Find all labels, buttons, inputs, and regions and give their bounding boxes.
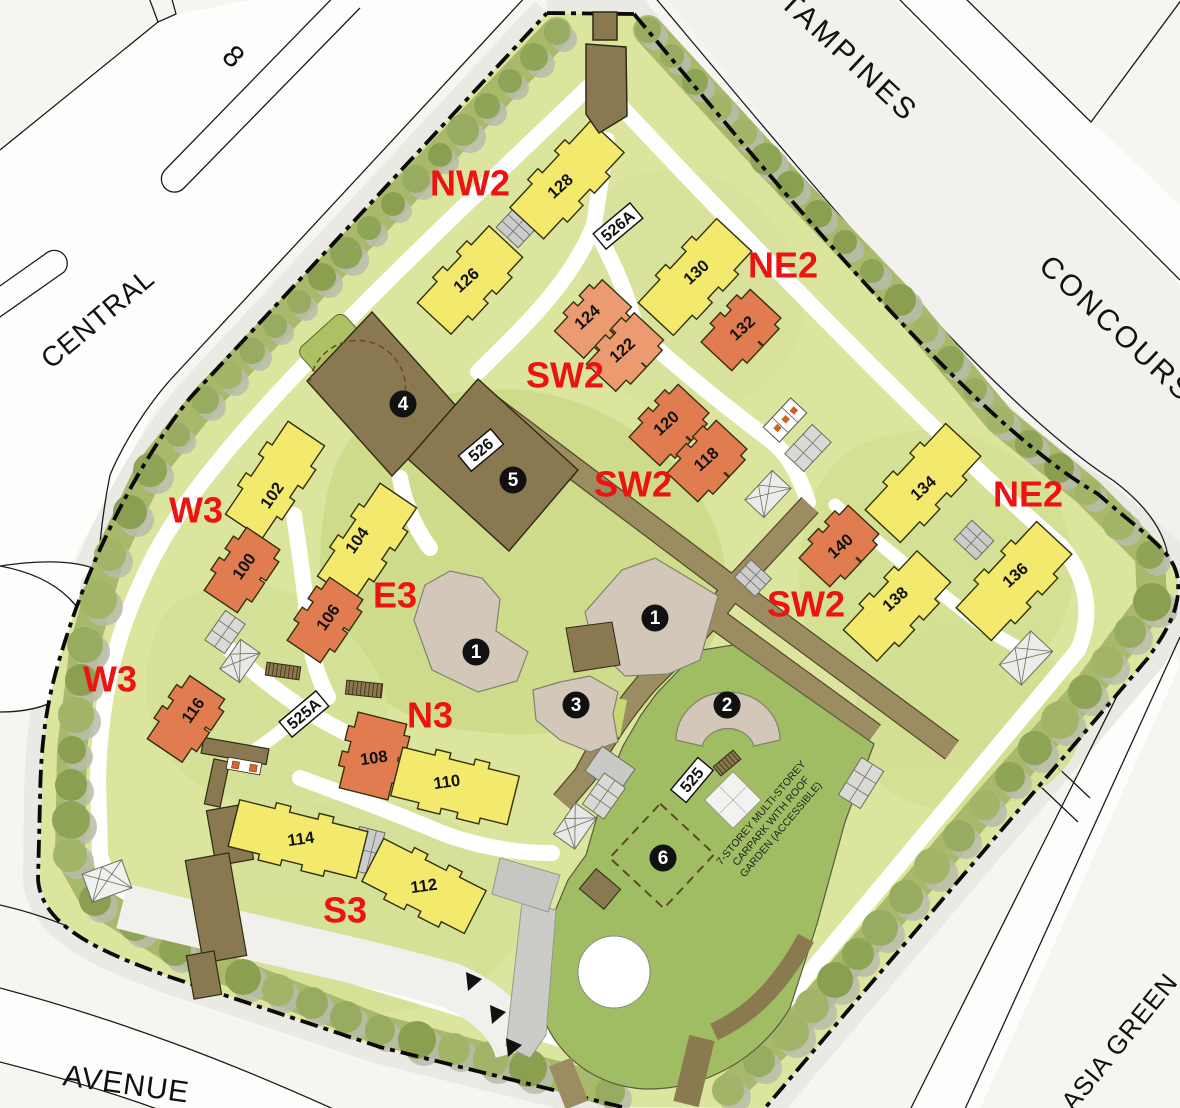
svg-text:1: 1	[471, 642, 482, 663]
svg-text:S3: S3	[323, 890, 367, 931]
svg-text:W3: W3	[169, 490, 223, 531]
svg-text:N3: N3	[407, 695, 453, 736]
svg-text:NE2: NE2	[748, 245, 818, 286]
svg-text:SW2: SW2	[526, 355, 604, 396]
svg-text:E3: E3	[373, 575, 417, 616]
svg-text:NW2: NW2	[430, 163, 510, 204]
svg-text:5: 5	[508, 470, 519, 491]
svg-text:1: 1	[650, 608, 661, 629]
svg-text:2: 2	[722, 695, 733, 716]
svg-text:110: 110	[432, 772, 461, 794]
svg-text:NE2: NE2	[993, 474, 1063, 515]
svg-text:114: 114	[286, 828, 316, 850]
svg-text:4: 4	[398, 394, 409, 415]
svg-text:108: 108	[359, 748, 389, 770]
svg-text:3: 3	[571, 695, 582, 716]
svg-text:SW2: SW2	[767, 584, 845, 625]
svg-text:6: 6	[658, 848, 669, 869]
svg-text:W3: W3	[83, 659, 137, 700]
svg-text:112: 112	[409, 876, 438, 898]
svg-text:SW2: SW2	[594, 464, 672, 505]
